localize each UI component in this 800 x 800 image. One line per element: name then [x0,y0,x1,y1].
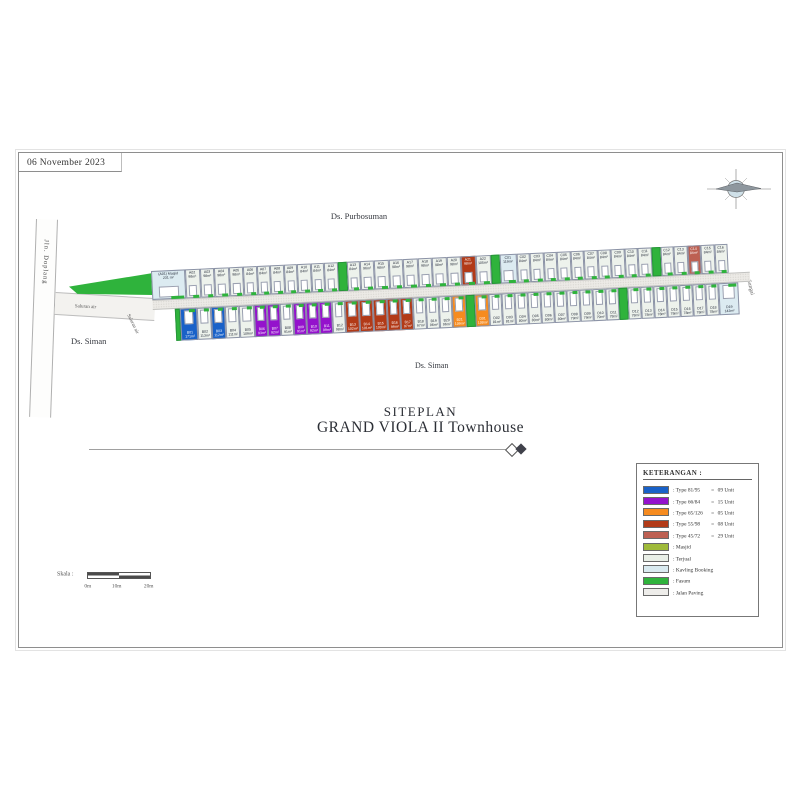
lot-b03: B03112m² [211,307,226,340]
lot-c16: C1684m² [714,244,729,274]
house-footprint [335,303,342,317]
front-yard-green [686,285,691,288]
lot-c01: C01119m² [499,254,517,284]
legend-swatch-t4572 [643,531,669,539]
scale-tick-10: 10m [112,582,122,588]
front-yard-green [591,276,596,279]
lot-label: C1184m² [640,249,648,257]
lot-label: A1698m² [392,261,400,269]
lot-label: D0281m² [492,316,500,324]
siteplan-band: (A01) Masjid231 m²A0298m²A0398m²A0498m²A… [151,243,754,342]
legend-item-paving: : Jalan Paving [643,587,752,598]
lot-label: D1178m² [609,311,617,319]
lot-b13: B13102m² [345,300,360,333]
front-yard-green [681,271,686,274]
front-yard-green [599,289,604,292]
lot-label: C1484m² [690,247,698,255]
house-footprint [630,289,637,303]
lot-label: B1996m² [429,319,437,327]
road-doplang: Jln. Doplang [29,219,58,418]
lot-d01: D01108m² [474,294,489,327]
lot-label: C0384m² [532,254,540,262]
lot-label: B13102m² [348,323,358,331]
front-yard-green [411,284,416,287]
front-yard-green [171,295,185,299]
lot-label: D19142m² [724,305,734,313]
lot-label: B03112m² [214,329,224,337]
front-yard-green [534,292,539,295]
front-yard-green [495,294,500,297]
house-footprint [505,295,512,309]
house-footprint [442,298,449,312]
plan-sheet: 06 November 2023 Ds. Purbosuman Jln. Dop… [18,152,783,648]
lot-label: D1578m² [670,308,678,316]
front-yard-green [264,291,269,294]
house-footprint [214,309,222,323]
lot-label: C0584m² [559,253,567,261]
front-yard-green [368,286,373,289]
house-footprint [609,290,616,304]
green-fasum-wedge [69,273,153,295]
lot-label: A1496m² [363,262,371,270]
legend-swatch-t65126 [643,508,669,516]
scale-bar-segment-2 [119,573,150,578]
lot-label: A1998m² [435,259,443,267]
lot-label: A1084m² [300,265,308,273]
front-yard-green [645,273,650,276]
house-footprint [669,287,676,301]
lot-b21: B21109m² [452,295,467,328]
front-yard-green [484,281,490,284]
lot-label: D01108m² [478,317,488,325]
village-label-siman-bottom: Ds. Siman [415,361,448,370]
front-yard-green [432,297,437,300]
legend-item-t5598: : Type 55/98=08 Unit [643,518,752,529]
lot-label: A2198m² [464,257,472,265]
house-footprint [348,302,356,316]
lot-label: C1584m² [703,246,711,254]
legend-item-fasum: : Fasum [643,575,752,586]
lot-a08: A0884m² [270,265,285,295]
house-footprint [242,307,251,321]
front-yard-green [204,308,209,311]
lot-a13: A1384m² [346,261,361,291]
lot-a17: A1798m² [403,258,419,288]
lot-a11: A1184m² [310,263,325,293]
front-yard-green [729,283,737,286]
lot-label: A1898m² [421,259,429,267]
legend-item-terjual: : Terjual [643,552,752,563]
scale-tick-20: 20m [144,582,154,588]
scale-bar [87,572,151,579]
lot-a09: A0984m² [283,264,298,294]
legend-label: : Jalan Paving [673,589,708,595]
house-footprint [518,294,525,308]
lot-label: C0284m² [519,255,527,263]
lot-label: B0891m² [283,326,291,334]
village-label-purbosuman: Ds. Purbosuman [259,211,459,221]
lot-a20: A2098m² [446,256,462,286]
lot-b01: B01171m² [180,308,198,341]
front-yard-green [352,301,357,304]
front-yard-green [547,292,552,295]
front-yard-green [445,296,450,299]
lot-a16: A1698m² [388,259,404,289]
lot-a21: A2198m² [461,256,477,286]
house-footprint [708,285,715,299]
house-footprint [695,286,702,300]
legend-swatch-masjid [643,543,669,551]
lot-label: B0792m² [270,327,278,335]
house-footprint [492,296,499,310]
front-yard-green [393,299,398,302]
front-yard-green [440,283,445,286]
front-yard-green [397,285,402,288]
lot-c14: C1484m² [687,245,702,275]
legend-label: : Kavling Booking [673,566,708,572]
lot-label: C01119m² [503,255,513,263]
front-yard-green [208,294,213,297]
lot-label: A0598m² [232,268,240,276]
front-yard-green [634,288,639,291]
front-yard-green [305,289,310,292]
lot-label: A0784m² [259,267,267,275]
lot-label: (A01) Masjid231 m² [158,271,178,280]
house-footprint [403,300,410,314]
lot-a14: A1496m² [360,260,375,290]
lot-label: D1778m² [696,307,704,315]
front-yard-green [312,303,317,306]
house-footprint [723,285,735,299]
lot-label: B1199m² [322,324,330,332]
lot-c02: C0284m² [516,253,531,283]
house-footprint [531,294,538,308]
legend-item-booking: : Kavling Booking [643,564,752,575]
lot-label: C0784m² [586,252,594,260]
lot-label: C0484m² [546,254,554,262]
legend-title: KETERANGAN : [643,469,752,480]
legend-swatch-fasum [643,577,669,585]
front-yard-green [193,294,198,297]
lot-c11: C1184m² [637,247,652,277]
date-text: 06 November 2023 [27,158,105,168]
front-yard-green [222,293,227,296]
legend-item-t65126: : Type 65/126=05 Unit [643,507,752,518]
house-footprint [557,293,564,307]
house-footprint [390,300,397,314]
lot-a01masjid: (A01) Masjid231 m² [151,269,186,300]
front-yard-green [406,298,411,301]
front-yard-green [578,276,583,279]
front-yard-green [673,286,678,289]
village-label-siman-left: Ds. Siman [71,336,106,346]
front-yard-green [708,270,713,273]
house-footprint [322,304,329,318]
lot-a03: A0398m² [199,268,215,298]
lot-label: B04111m² [228,329,238,337]
lot-d19: D19142m² [718,282,739,315]
front-yard-green [586,290,591,293]
lot-label: D0480m² [518,315,526,323]
front-yard-green [260,305,265,308]
lot-c08: C0884m² [597,249,612,279]
legend-label: : Type 45/72=29 Unit [673,532,734,538]
front-yard-green [286,304,291,307]
lot-c03: C0384m² [530,253,545,283]
front-yard-green [668,272,673,275]
lot-label: A1798m² [406,260,414,268]
front-yard-green [695,271,700,274]
lot-b15: B15100m² [373,299,388,332]
siteplan-title: SITEPLAN [59,404,782,420]
legend-label: : Type 65/126=05 Unit [673,509,734,515]
legend-item-t6684: : Type 66/84=15 Unit [643,495,752,506]
scale-ticks: 0m 10m 20m [83,581,155,590]
lot-label: A1598m² [377,261,385,269]
lot-a02: A0298m² [185,269,201,299]
legend-label: : Type 81/95=09 Unit [673,486,734,492]
lot-a07: A0784m² [256,265,271,295]
lot-c05: C0584m² [557,251,572,281]
house-footprint [416,299,423,313]
lot-a05: A0598m² [228,267,244,297]
front-yard-green [419,298,424,301]
lot-label: B1092m² [309,325,317,333]
scale-label: Skala : [57,570,74,577]
lot-a04: A0498m² [214,267,230,297]
legend-swatch-t5598 [643,520,669,528]
front-yard-green [237,292,242,295]
front-yard-green [722,269,727,272]
front-yard-green [521,293,526,296]
front-yard-green [481,295,486,298]
front-yard-green [380,300,385,303]
house-footprint [682,287,689,301]
front-yard-green [354,287,359,290]
lot-label: A22105m² [478,257,488,265]
front-yard-green [458,296,463,299]
front-yard-green [338,302,343,305]
legend-rows: : Type 81/95=09 Unit: Type 66/84=15 Unit… [643,484,752,598]
front-yard-green [551,277,556,280]
house-footprint [228,308,236,322]
lot-label: B14101m² [362,322,372,330]
house-footprint [429,299,436,313]
lot-label: D0780m² [557,313,565,321]
house-footprint [270,306,277,320]
lot-a12: A1284m² [324,262,339,292]
lot-label: B01171m² [184,331,194,339]
front-yard-green [325,302,330,305]
lot-b04: B04111m² [225,306,240,339]
front-yard-green [218,307,223,310]
legend-box: KETERANGAN : : Type 81/95=09 Unit: Type … [636,463,759,617]
lot-label: B0693m² [257,327,265,335]
lot-label: C1384m² [676,247,684,255]
lot-c09: C0984m² [610,249,625,279]
lot-label: B1298m² [335,324,343,332]
lot-a10: A1084m² [297,263,312,293]
house-footprint [362,302,370,316]
lot-a19: A1998m² [432,257,448,287]
lot-label: B1797m² [403,321,411,329]
lot-a06: A0684m² [243,266,258,296]
front-yard-green [366,300,371,303]
legend-label: : Type 66/84=15 Unit [673,498,734,504]
front-yard-green [573,290,578,293]
legend-swatch-t6684 [643,497,669,505]
lot-label: A0884m² [273,266,281,274]
lot-b05: B05109m² [239,305,255,338]
front-yard-green [699,285,704,288]
lot-label: A2098m² [450,258,458,266]
front-yard-green [712,284,717,287]
lot-label: A0984m² [286,266,294,274]
house-footprint [309,304,316,318]
house-footprint [596,291,603,305]
house-footprint [376,301,384,315]
lot-b14: B14101m² [359,300,374,333]
front-yard-green [537,278,542,281]
lot-label: C0884m² [600,251,608,259]
front-yard-green [618,274,623,277]
scale-tick-0: 0m [84,582,91,588]
lot-label: D1079m² [596,312,604,320]
front-yard-green [612,289,617,292]
compass-icon [707,167,771,211]
lot-label: D0680m² [544,314,552,322]
house-footprint [656,288,663,302]
siteplan-document: 06 November 2023 Ds. Purbosuman Jln. Dop… [0,0,800,800]
lot-c10: C1084m² [624,248,639,278]
lot-c13: C1384m² [673,246,688,276]
lot-a22: A22105m² [475,255,491,285]
legend-item-t8195: : Type 81/95=09 Unit [643,484,752,495]
scale-bar-segment-1 [88,573,119,578]
front-yard-green [291,290,296,293]
lot-label: A1184m² [313,264,321,272]
front-yard-green [246,306,252,309]
lot-label: C0984m² [613,250,621,258]
legend-swatch-booking [643,565,669,573]
front-yard-green [564,277,569,280]
house-footprint [478,296,486,310]
front-yard-green [560,291,565,294]
lot-c15: C1584m² [700,244,715,274]
legend-swatch-terjual [643,554,669,562]
house-footprint [544,293,551,307]
lot-label: B02113m² [200,330,210,338]
lot-label: D1278m² [631,310,639,318]
front-yard-green [318,288,323,291]
lot-b02: B02113m² [197,307,212,340]
house-footprint [257,307,264,321]
legend-label: : Masjid [673,543,708,549]
lot-label: A0298m² [188,270,196,278]
title-diamond-filled [515,443,526,454]
lot-label: D1878m² [709,306,717,314]
lot-label: A1384m² [349,263,357,271]
lot-a18: A1898m² [417,258,433,288]
house-footprint [455,297,463,311]
lot-c07: C0784m² [584,250,599,280]
front-yard-green [299,303,304,306]
title-rule [89,449,509,450]
house-footprint [643,289,650,303]
lot-c04: C0484m² [543,252,558,282]
legend-label: : Type 55/98=08 Unit [673,521,734,527]
lot-label: C1684m² [717,245,725,253]
lot-label: C1084m² [627,250,635,258]
house-footprint [296,305,303,319]
scale-block: Skala : 0m 10m 20m [57,569,177,597]
lot-label: D1678m² [683,307,691,315]
house-footprint [583,291,590,305]
lot-a15: A1598m² [374,260,390,290]
project-title: GRAND VIOLA II Townhouse [59,419,782,437]
lot-label: D0381m² [505,316,513,324]
entry-road [54,292,155,321]
lot-label: A0498m² [217,269,225,277]
road-doplang-label: Jln. Doplang [37,239,50,417]
front-yard-green [251,292,256,295]
front-yard-green [524,279,529,282]
lot-label: C1284m² [663,248,671,256]
front-yard-green [273,305,278,308]
lot-label: D0979m² [583,312,591,320]
lot-label: A0398m² [203,270,211,278]
front-yard-green [509,279,515,282]
front-yard-green [632,274,637,277]
front-yard-green [332,288,337,291]
front-yard-green [605,275,610,278]
house-footprint [570,292,577,306]
front-yard-green [382,285,387,288]
front-yard-green [647,287,652,290]
front-yard-green [278,290,283,293]
house-footprint [200,309,208,323]
lot-c12: C1284m² [660,246,675,276]
lot-label: D0879m² [570,313,578,321]
legend-item-t4572: : Type 45/72=29 Unit [643,530,752,541]
front-yard-green [660,286,665,289]
lot-label: B05109m² [242,328,252,336]
lot-label: B15100m² [376,322,386,330]
legend-label: : Fasum [673,578,708,584]
house-footprint [283,306,290,320]
front-yard-green [189,308,195,311]
lot-label: D1378m² [644,309,652,317]
lot-c06: C0684m² [570,251,585,281]
lot-label: B1699m² [390,321,398,329]
front-yard-green [232,306,237,309]
lot-label: D0580m² [531,315,539,323]
waterway-label-1: Saluran air [75,303,97,310]
legend-item-masjid: : Masjid [643,541,752,552]
lot-label: A0684m² [246,268,254,276]
lot-label: A1284m² [327,264,335,272]
front-yard-green [469,281,474,284]
front-yard-green [508,293,513,296]
lot-label: B0991m² [296,326,304,334]
house-footprint [184,310,194,324]
legend-label: : Terjual [673,555,708,561]
front-yard-green [455,282,460,285]
legend-swatch-paving [643,588,669,596]
date-block: 06 November 2023 [19,153,122,172]
lot-label: B1897m² [416,320,424,328]
legend-swatch-t8195 [643,486,669,494]
